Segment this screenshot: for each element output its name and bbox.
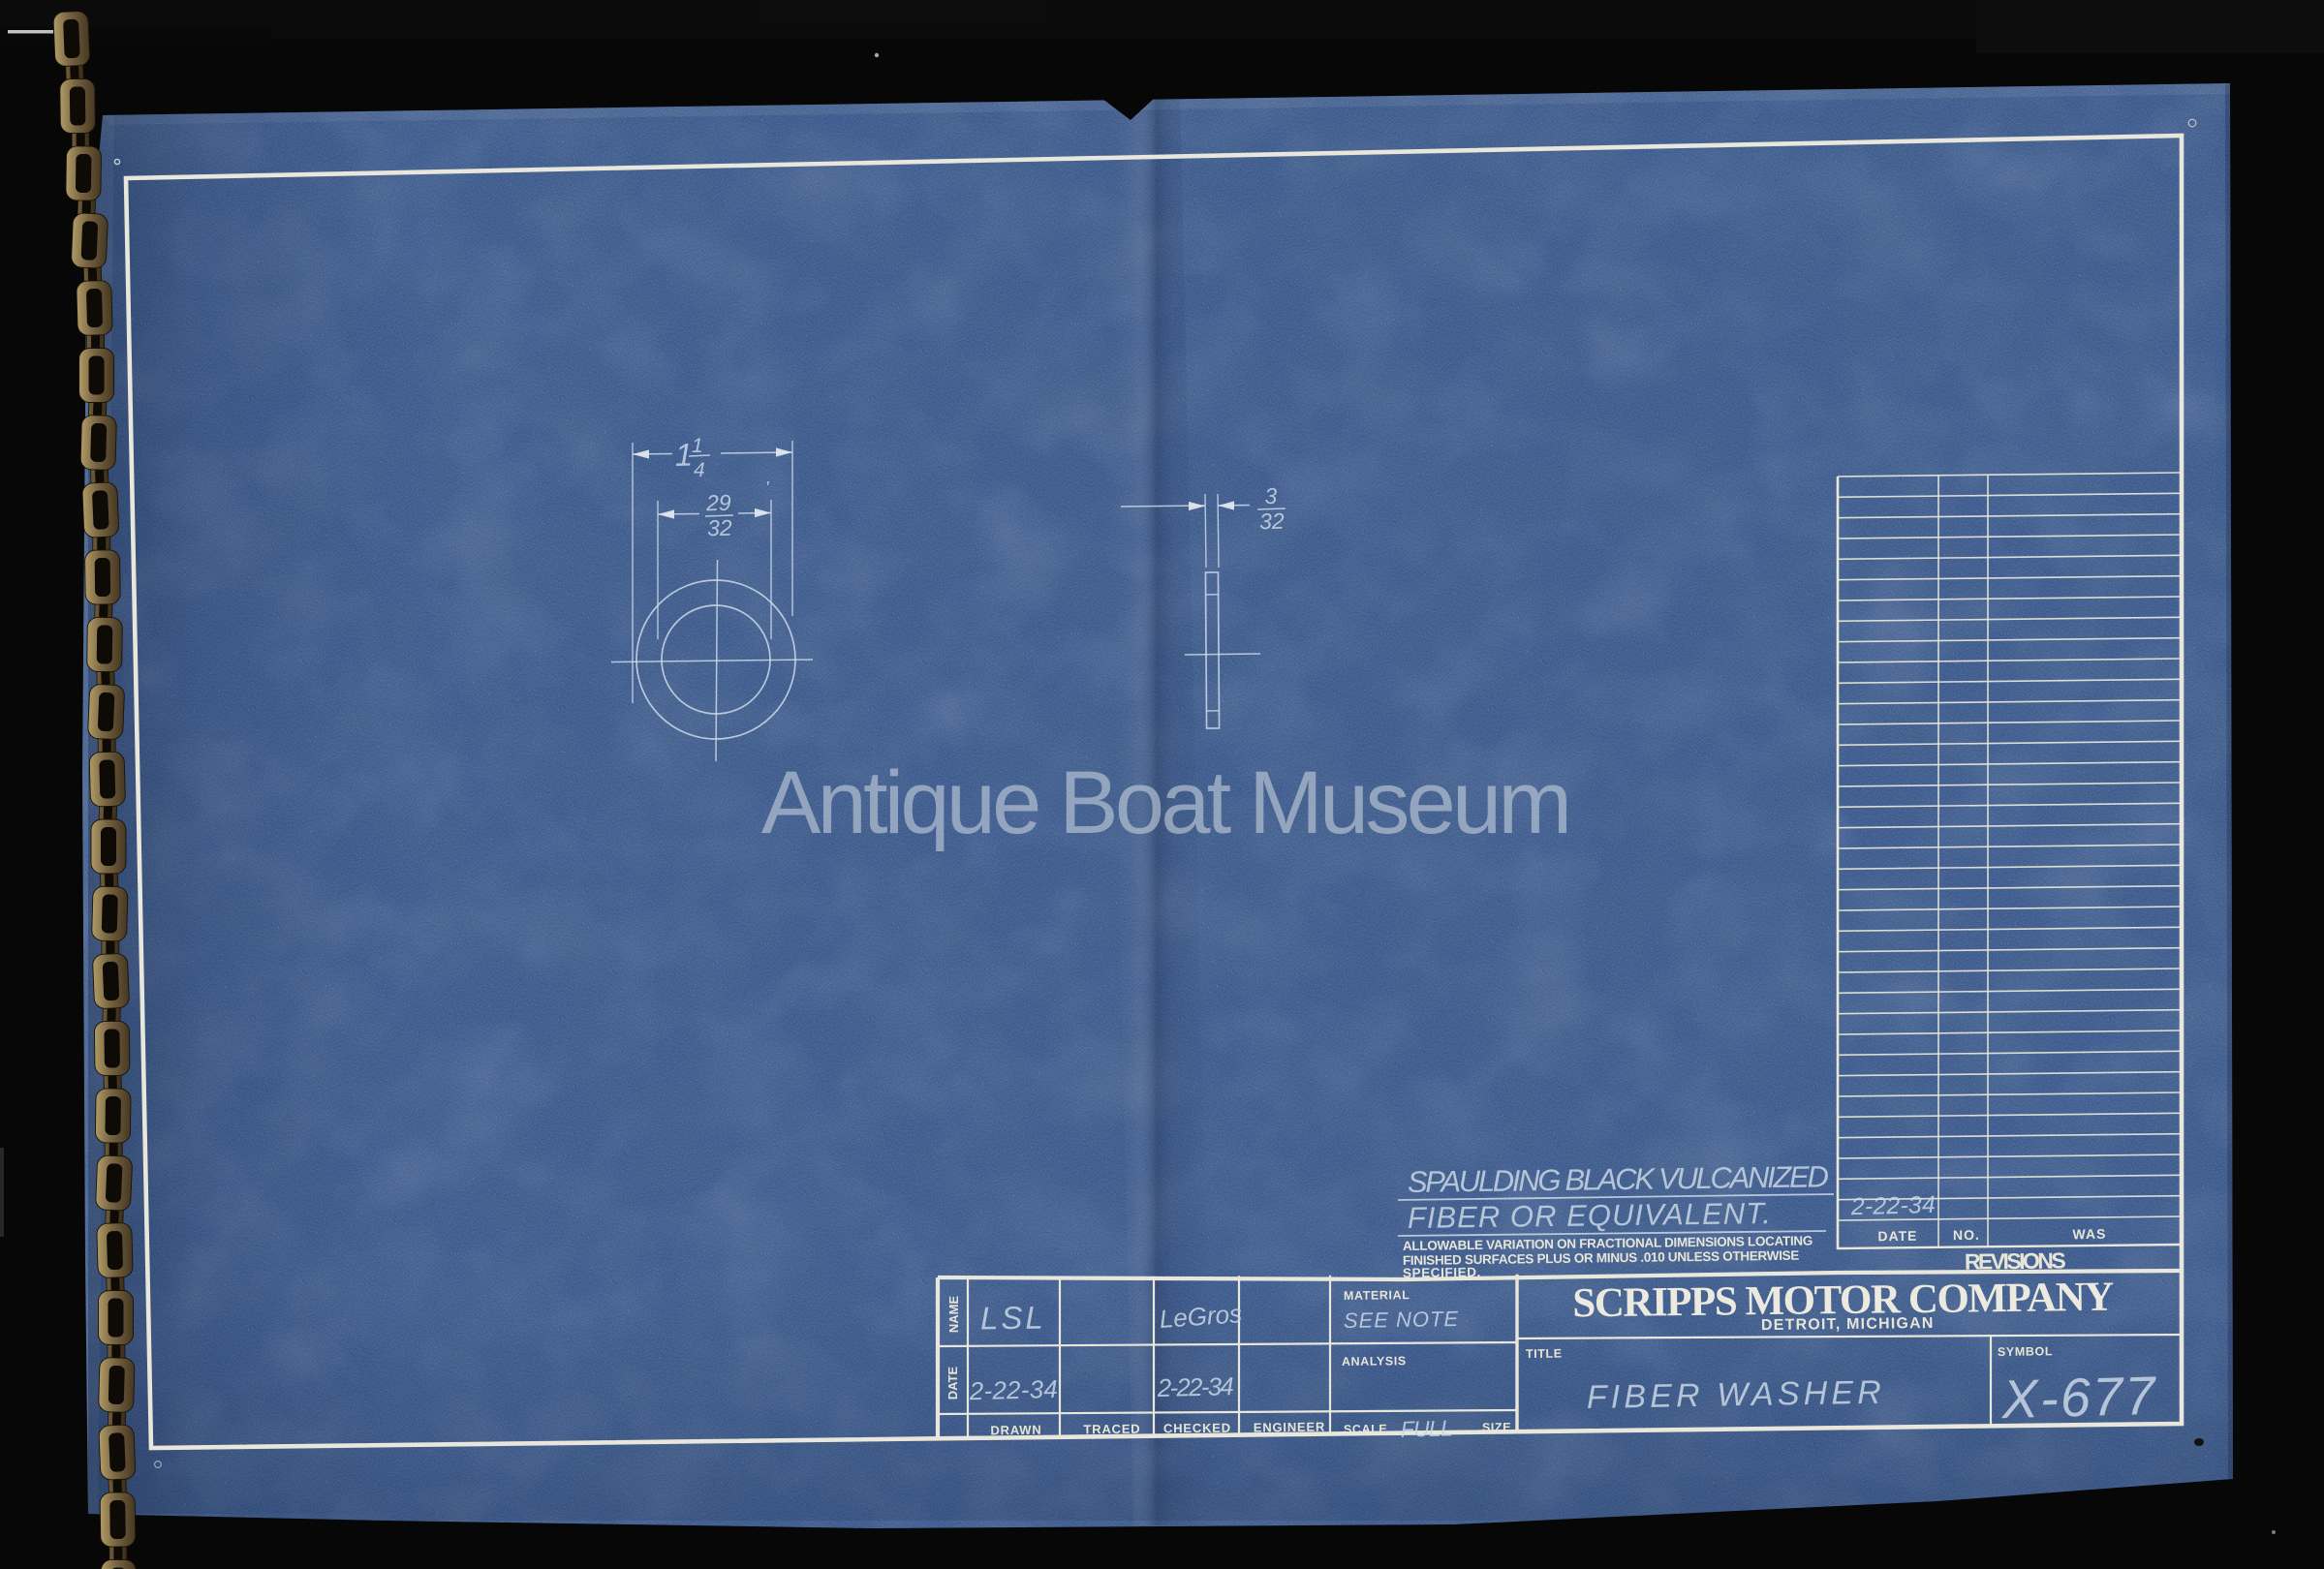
svg-text:SYMBOL: SYMBOL — [1998, 1344, 2053, 1359]
svg-text:X-677: X-677 — [1999, 1365, 2160, 1430]
svg-text:SPAULDING BLACK VULCANIZED: SPAULDING BLACK VULCANIZED — [1408, 1159, 1831, 1199]
svg-text:4: 4 — [694, 459, 705, 481]
svg-text:': ' — [765, 478, 769, 498]
svg-text:TITLE: TITLE — [1526, 1347, 1563, 1361]
svg-text:FULL: FULL — [1400, 1415, 1455, 1441]
svg-text:FIBER WASHER: FIBER WASHER — [1586, 1374, 1887, 1416]
svg-text:CHECKED: CHECKED — [1163, 1421, 1231, 1436]
svg-text:2-22-34: 2-22-34 — [1849, 1191, 1937, 1220]
svg-text:NO.: NO. — [1953, 1227, 1980, 1243]
svg-text:1: 1 — [674, 437, 693, 473]
svg-text:2-22-34: 2-22-34 — [968, 1374, 1059, 1405]
svg-text:WAS: WAS — [2072, 1226, 2106, 1242]
svg-text:DRAWN: DRAWN — [990, 1423, 1041, 1438]
svg-text:Antique Boat Museum: Antique Boat Museum — [761, 754, 1572, 852]
svg-text:DATE: DATE — [945, 1366, 960, 1400]
svg-text:DATE: DATE — [1877, 1228, 1917, 1245]
svg-text:32: 32 — [707, 515, 732, 541]
svg-text:TRACED: TRACED — [1083, 1422, 1140, 1437]
svg-text:SIZE: SIZE — [1482, 1421, 1511, 1434]
svg-text:NAME: NAME — [946, 1296, 961, 1334]
svg-text:ENGINEER: ENGINEER — [1254, 1420, 1325, 1435]
svg-text:DETROIT, MICHIGAN: DETROIT, MICHIGAN — [1761, 1315, 1936, 1334]
svg-text:1: 1 — [692, 435, 703, 457]
svg-text:FIBER OR EQUIVALENT.: FIBER OR EQUIVALENT. — [1408, 1196, 1773, 1235]
svg-text:32: 32 — [1259, 508, 1285, 535]
svg-text:2-22-34: 2-22-34 — [1156, 1371, 1235, 1402]
svg-text:3: 3 — [1264, 483, 1278, 508]
svg-text:29: 29 — [705, 490, 731, 516]
svg-text:SCALE: SCALE — [1344, 1422, 1388, 1436]
svg-text:LeGros: LeGros — [1159, 1299, 1243, 1334]
svg-text:ANALYSIS: ANALYSIS — [1342, 1354, 1407, 1369]
svg-text:SEE NOTE: SEE NOTE — [1344, 1307, 1460, 1333]
svg-text:MATERIAL: MATERIAL — [1344, 1288, 1410, 1303]
svg-text:LSL: LSL — [980, 1300, 1046, 1337]
